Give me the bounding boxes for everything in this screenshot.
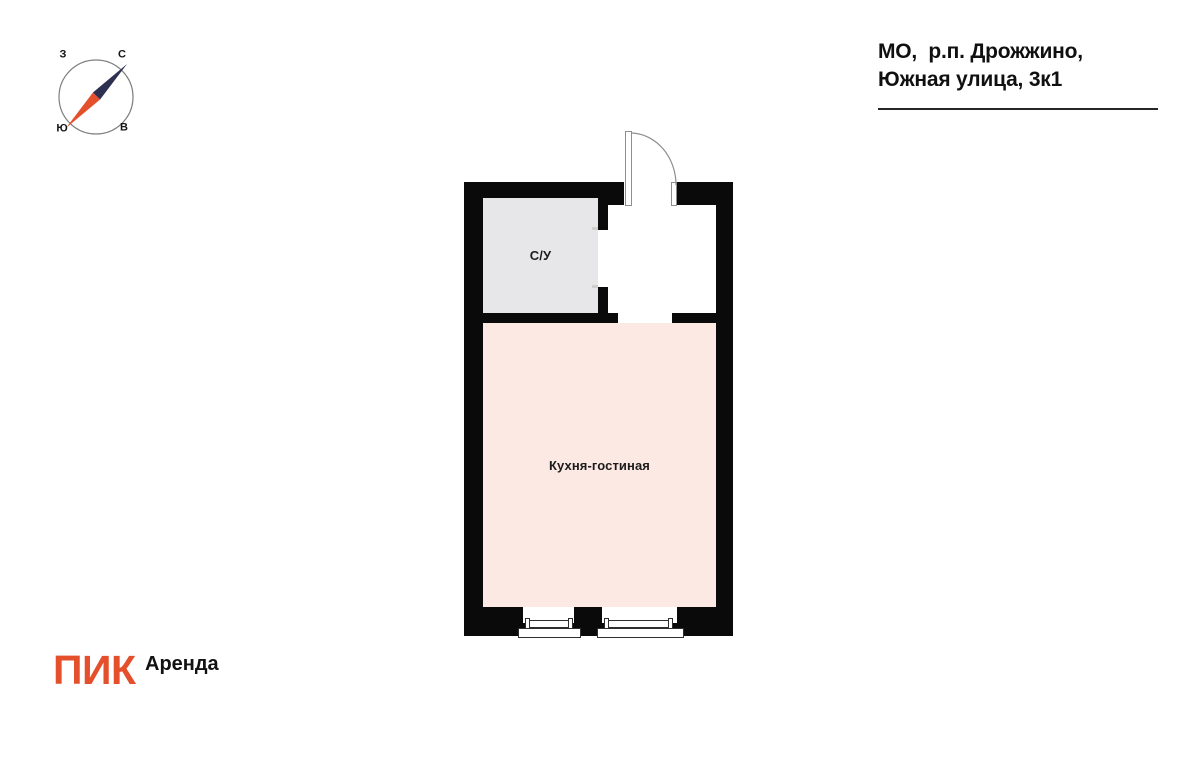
bathroom-label: С/У bbox=[530, 248, 551, 263]
kitchen-living-label: Кухня-гостиная bbox=[549, 458, 650, 473]
pik-logo-suffix: Аренда bbox=[145, 654, 219, 674]
entrance-door-arc bbox=[632, 133, 676, 185]
address-line-1: МО, р.п. Дрожжино, bbox=[878, 38, 1178, 66]
wall-top-left bbox=[464, 182, 624, 198]
bathroom-door-jamb-tick bbox=[592, 285, 598, 288]
wall-hall-stub bbox=[672, 313, 716, 323]
wall-bathroom-right-lower bbox=[598, 287, 608, 313]
window-right-sill bbox=[597, 628, 684, 638]
compass-needle-south bbox=[66, 93, 100, 129]
address-divider bbox=[878, 108, 1158, 110]
compass-label-west: З bbox=[60, 50, 67, 61]
pik-logo: ПИК bbox=[53, 650, 135, 691]
compass-needle-north bbox=[93, 64, 127, 100]
compass-label-south: Ю bbox=[56, 124, 67, 135]
window-left-frame bbox=[527, 620, 573, 628]
floorplan-page: З С Ю В МО, р.п. Дрожжино, Южная улица, … bbox=[0, 0, 1200, 770]
bathroom-door-jamb-tick bbox=[592, 227, 598, 230]
window-right-frame bbox=[606, 620, 673, 628]
compass-label-east: В bbox=[120, 123, 128, 134]
address-block: МО, р.п. Дрожжино, Южная улица, 3к1 bbox=[878, 38, 1178, 93]
room-bathroom: С/У bbox=[483, 198, 598, 313]
wall-right bbox=[716, 182, 733, 636]
wall-left bbox=[464, 182, 483, 636]
wall-bathroom-right-upper bbox=[598, 198, 608, 230]
room-kitchen-living: Кухня-гостиная bbox=[483, 323, 716, 607]
window-left-sill bbox=[518, 628, 581, 638]
wall-bathroom-bottom bbox=[483, 313, 618, 323]
entrance-door-arc-icon bbox=[620, 125, 690, 195]
address-line-2: Южная улица, 3к1 bbox=[878, 66, 1178, 94]
compass-label-north: С bbox=[118, 50, 126, 61]
